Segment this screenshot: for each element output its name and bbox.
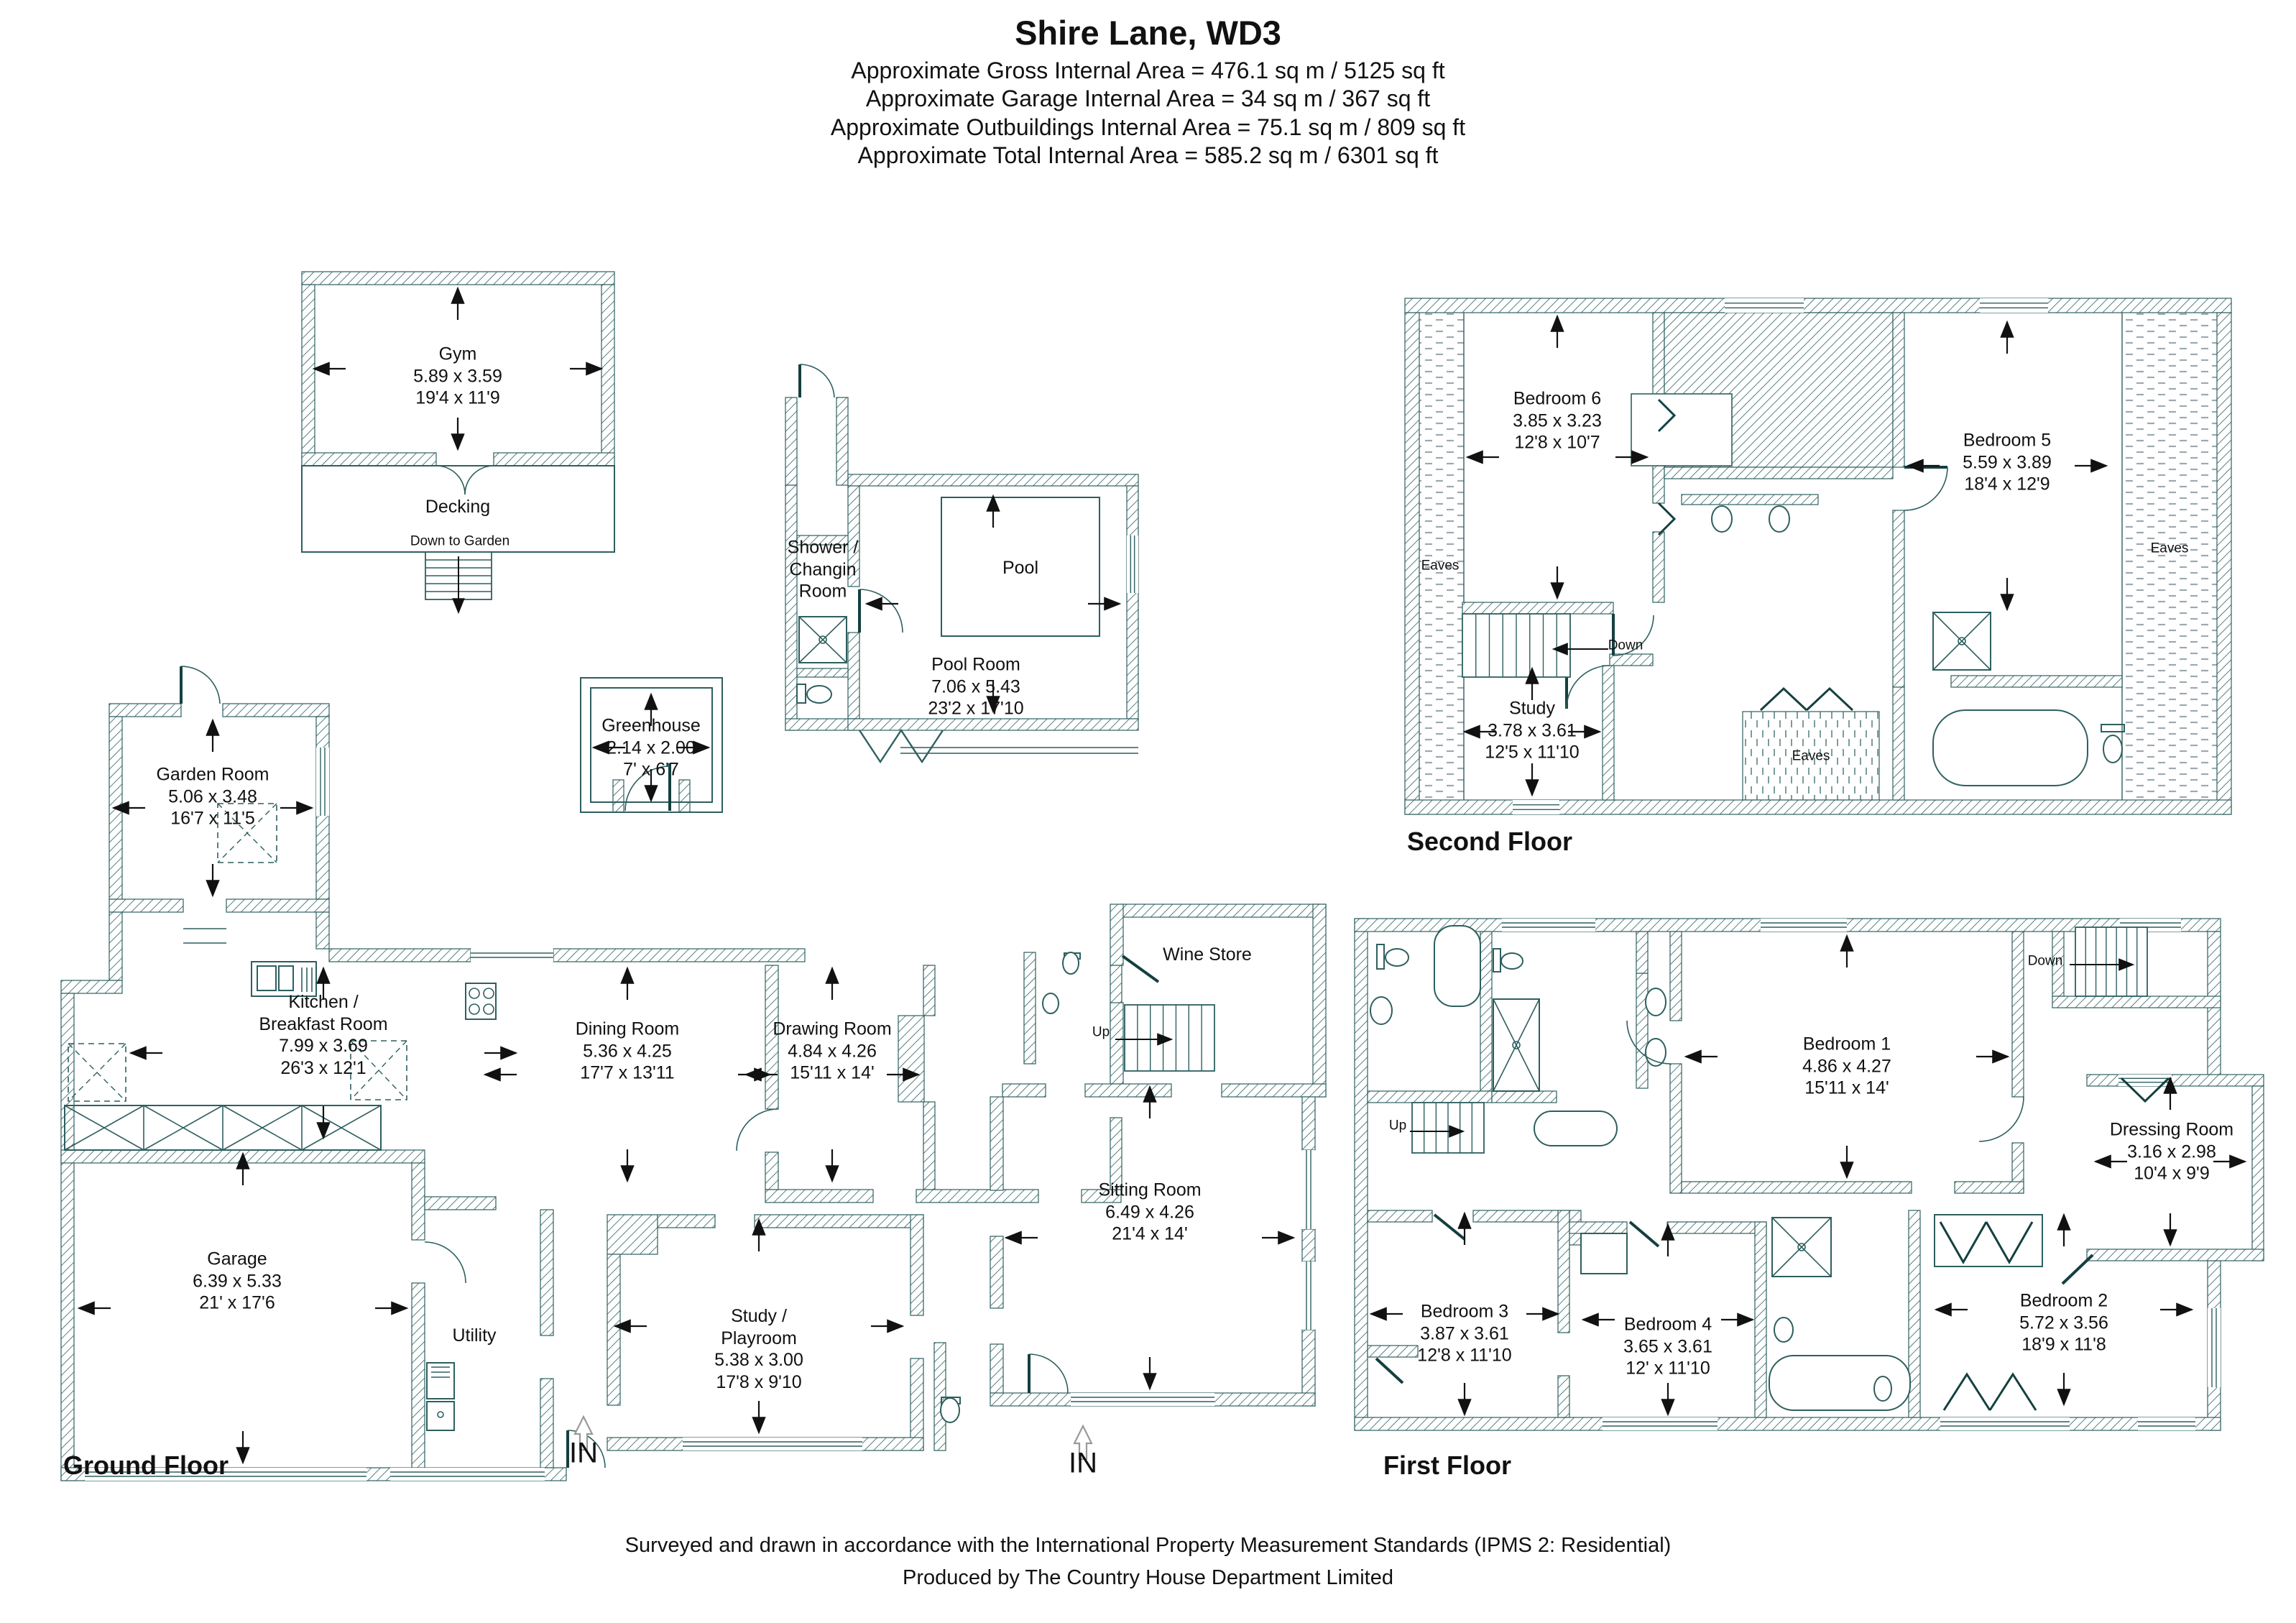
room-label-gym: Gym5.89 x 3.5919'4 x 11'9 bbox=[413, 343, 502, 409]
room-label-garage: Garage6.39 x 5.3321' x 17'6 bbox=[193, 1248, 282, 1314]
footer: Surveyed and drawn in accordance with th… bbox=[0, 1530, 2296, 1594]
room-label-kitchen: Kitchen /Breakfast Room7.99 x 3.6926'3 x… bbox=[259, 991, 387, 1079]
garage-area-line: Approximate Garage Internal Area = 34 sq… bbox=[0, 85, 2296, 113]
total-area-line: Approximate Total Internal Area = 585.2 … bbox=[0, 142, 2296, 170]
footer-standards-line: Surveyed and drawn in accordance with th… bbox=[0, 1530, 2296, 1562]
room-label-study-2f: Study3.78 x 3.6112'5 x 11'10 bbox=[1485, 697, 1579, 763]
room-label-shower-changing: Shower /ChanginRoom bbox=[788, 536, 859, 602]
label-eaves-right: Eaves bbox=[2151, 540, 2189, 556]
label-up-gf: Up bbox=[1092, 1024, 1110, 1040]
footer-producer-line: Produced by The Country House Department… bbox=[0, 1562, 2296, 1594]
label-down-ff: Down bbox=[2028, 952, 2063, 969]
windows-layer bbox=[85, 298, 2221, 1481]
label-eaves-centre: Eaves bbox=[1792, 748, 1830, 764]
walls-layer bbox=[61, 272, 2264, 1481]
outbuildings-area-line: Approximate Outbuildings Internal Area =… bbox=[0, 114, 2296, 142]
room-label-bedroom3: Bedroom 33.87 x 3.6112'8 x 11'10 bbox=[1417, 1300, 1511, 1366]
room-label-bedroom1: Bedroom 14.86 x 4.2715'11 x 14' bbox=[1802, 1033, 1891, 1099]
label-down-2f: Down bbox=[1608, 637, 1643, 653]
floorplan-drawing bbox=[0, 0, 2296, 1623]
room-label-garden-room: Garden Room5.06 x 3.4816'7 x 11'5 bbox=[156, 763, 269, 829]
room-label-study-playroom: Study /Playroom5.38 x 3.0017'8 x 9'10 bbox=[714, 1305, 803, 1393]
room-label-greenhouse: Greenhouse2.14 x 2.007' x 6'7 bbox=[601, 714, 701, 781]
room-label-decking: Decking bbox=[425, 496, 490, 518]
label-pool: Pool bbox=[1002, 557, 1038, 579]
label-eaves-left: Eaves bbox=[1421, 557, 1460, 574]
room-label-drawing: Drawing Room4.84 x 4.2615'11 x 14' bbox=[773, 1018, 891, 1084]
outlines-layer bbox=[65, 394, 2124, 1430]
room-label-dressing: Dressing Room3.16 x 2.9810'4 x 9'9 bbox=[2110, 1118, 2233, 1185]
label-up-ff: Up bbox=[1389, 1117, 1406, 1134]
label-in-entrance-1: IN bbox=[569, 1436, 598, 1471]
ground-floor-title: Ground Floor bbox=[63, 1450, 229, 1481]
label-in-entrance-2: IN bbox=[1069, 1446, 1097, 1481]
room-label-bedroom4: Bedroom 43.65 x 3.6112' x 11'10 bbox=[1623, 1313, 1712, 1379]
page-title: Shire Lane, WD3 bbox=[0, 13, 2296, 52]
second-floor-title: Second Floor bbox=[1407, 827, 1572, 857]
room-label-wine-store: Wine Store bbox=[1163, 944, 1252, 966]
header: Shire Lane, WD3 Approximate Gross Intern… bbox=[0, 13, 2296, 170]
fixtures-layer bbox=[438, 506, 2122, 1422]
room-label-dining: Dining Room5.36 x 4.2517'7 x 13'11 bbox=[576, 1018, 680, 1084]
gross-area-line: Approximate Gross Internal Area = 476.1 … bbox=[0, 57, 2296, 85]
floorplan-page: Shire Lane, WD3 Approximate Gross Intern… bbox=[0, 0, 2296, 1623]
label-down-to-garden: Down to Garden bbox=[410, 533, 510, 549]
room-label-bedroom6: Bedroom 63.85 x 3.2312'8 x 10'7 bbox=[1513, 387, 1602, 454]
room-label-pool-room: Pool Room7.06 x 5.4323'2 x 17'10 bbox=[928, 653, 1023, 719]
first-floor-title: First Floor bbox=[1383, 1450, 1511, 1481]
room-label-bedroom5: Bedroom 55.59 x 3.8918'4 x 12'9 bbox=[1963, 429, 2052, 495]
room-label-utility: Utility bbox=[452, 1325, 496, 1347]
room-label-bedroom2: Bedroom 25.72 x 3.5618'9 x 11'8 bbox=[2019, 1289, 2108, 1356]
room-label-sitting: Sitting Room6.49 x 4.2621'4 x 14' bbox=[1098, 1179, 1201, 1245]
